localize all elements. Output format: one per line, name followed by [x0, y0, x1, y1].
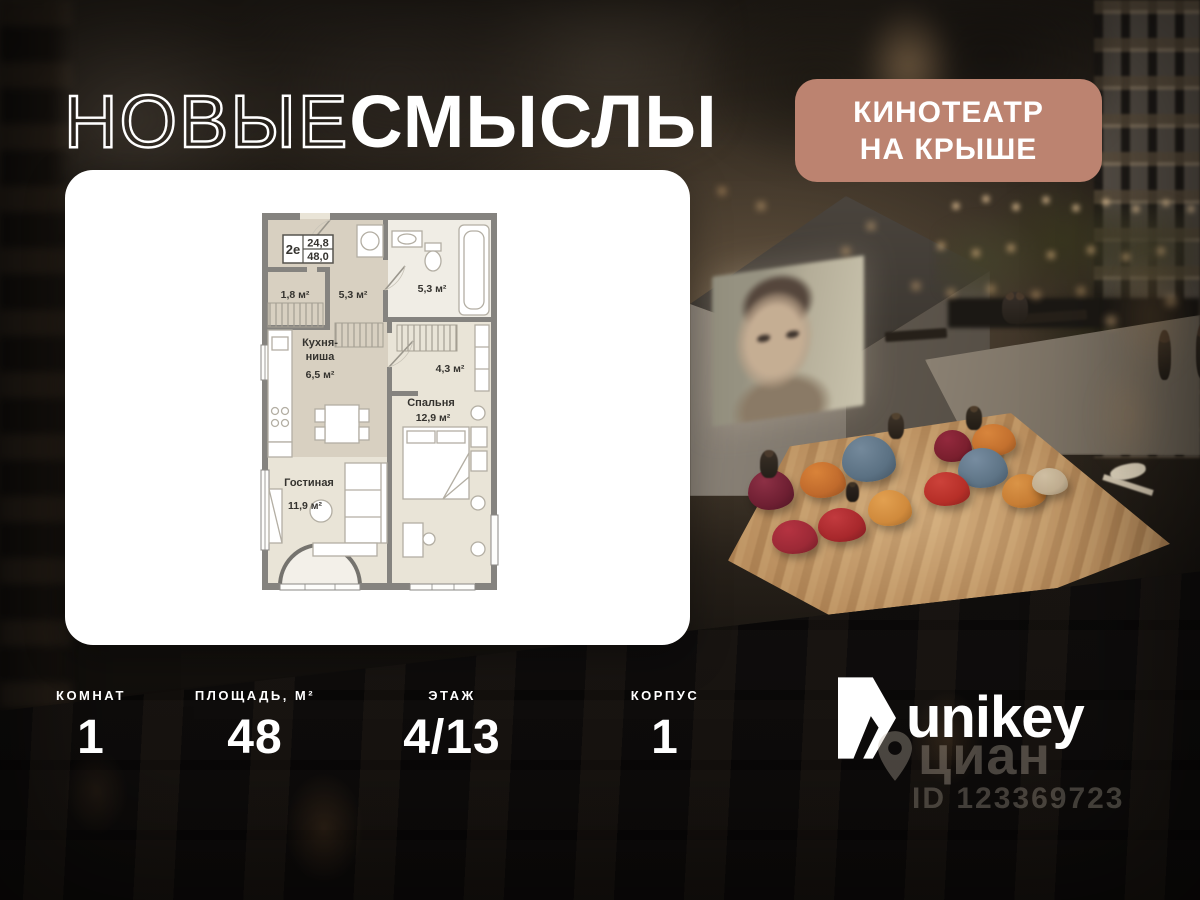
bath-area-label: 5,3 м²: [418, 283, 447, 295]
bedroom-area-label: 12,9 м²: [416, 412, 451, 424]
stat-rooms-label: КОМНАТ: [36, 688, 146, 703]
kitchen-name-line2: ниша: [306, 351, 336, 363]
watermark-brand: циан: [918, 726, 1051, 786]
floorplan-drawing: 2е 24,8 48,0 1,8 м² 5,3 м² 5,3 м² Кухня-…: [225, 205, 525, 635]
unit-total-area: 48,0: [307, 251, 328, 263]
unit-type: 2е: [286, 242, 300, 257]
stat-building-label: КОРПУС: [600, 688, 730, 703]
seated-viewer: [966, 406, 982, 430]
bean-bag: [1032, 468, 1068, 495]
map-pin-icon: [878, 730, 912, 782]
stat-building-value: 1: [600, 710, 730, 765]
project-logo-thin: НОВЫЕ: [64, 85, 349, 159]
living-name-label: Гостиная: [284, 477, 334, 489]
stat-floor-value: 4/13: [382, 710, 522, 765]
unit-living-area: 24,8: [307, 238, 328, 250]
stat-rooms-value: 1: [36, 710, 146, 765]
movie-projection-screen: [712, 255, 864, 426]
unit-label-box: 2е 24,8 48,0: [283, 235, 333, 263]
seated-viewer: [760, 450, 778, 478]
wardrobe-area-label: 4,3 м²: [436, 363, 465, 375]
stat-area-label: ПЛОЩАДЬ, М²: [185, 688, 325, 703]
stat-floor: ЭТАЖ 4/13: [382, 688, 522, 765]
watermark-listing-id: ID 123369723: [912, 782, 1125, 816]
stat-area-value: 48: [185, 710, 325, 765]
badge-line-1: КИНОТЕАТР: [853, 94, 1044, 131]
living-area-label: 11,9 м²: [288, 500, 323, 512]
kitchen-name-line1: Кухня-: [302, 337, 338, 349]
project-logo: НОВЫЕСМЫСЛЫ: [64, 82, 718, 162]
badge-line-2: НА КРЫШЕ: [860, 131, 1038, 168]
promo-banner: НОВЫЕСМЫСЛЫ КИНОТЕАТР НА КРЫШЕ: [0, 0, 1200, 900]
string-lights: [0, 0, 2, 2]
cian-watermark: циан ID 123369723: [878, 726, 1125, 816]
kitchen-area-label: 6,5 м²: [306, 369, 335, 381]
watermark-row: циан: [878, 726, 1125, 786]
stat-area: ПЛОЩАДЬ, М² 48: [185, 688, 325, 765]
lit-windows-right: [1080, 250, 1200, 470]
stat-floor-label: ЭТАЖ: [382, 688, 522, 703]
project-logo-bold: СМЫСЛЫ: [349, 85, 718, 159]
rooftop-cinema-badge: КИНОТЕАТР НА КРЫШЕ: [795, 79, 1102, 182]
bedroom-name-label: Спальня: [407, 397, 455, 409]
stat-building: КОРПУС 1: [600, 688, 730, 765]
stat-rooms: КОМНАТ 1: [36, 688, 146, 765]
person-silhouette: [1002, 292, 1028, 324]
seated-child: [846, 482, 859, 502]
seated-viewer: [888, 413, 904, 439]
closet-area-label: 1,8 м²: [281, 289, 310, 301]
hall-area-label: 5,3 м²: [339, 289, 368, 301]
